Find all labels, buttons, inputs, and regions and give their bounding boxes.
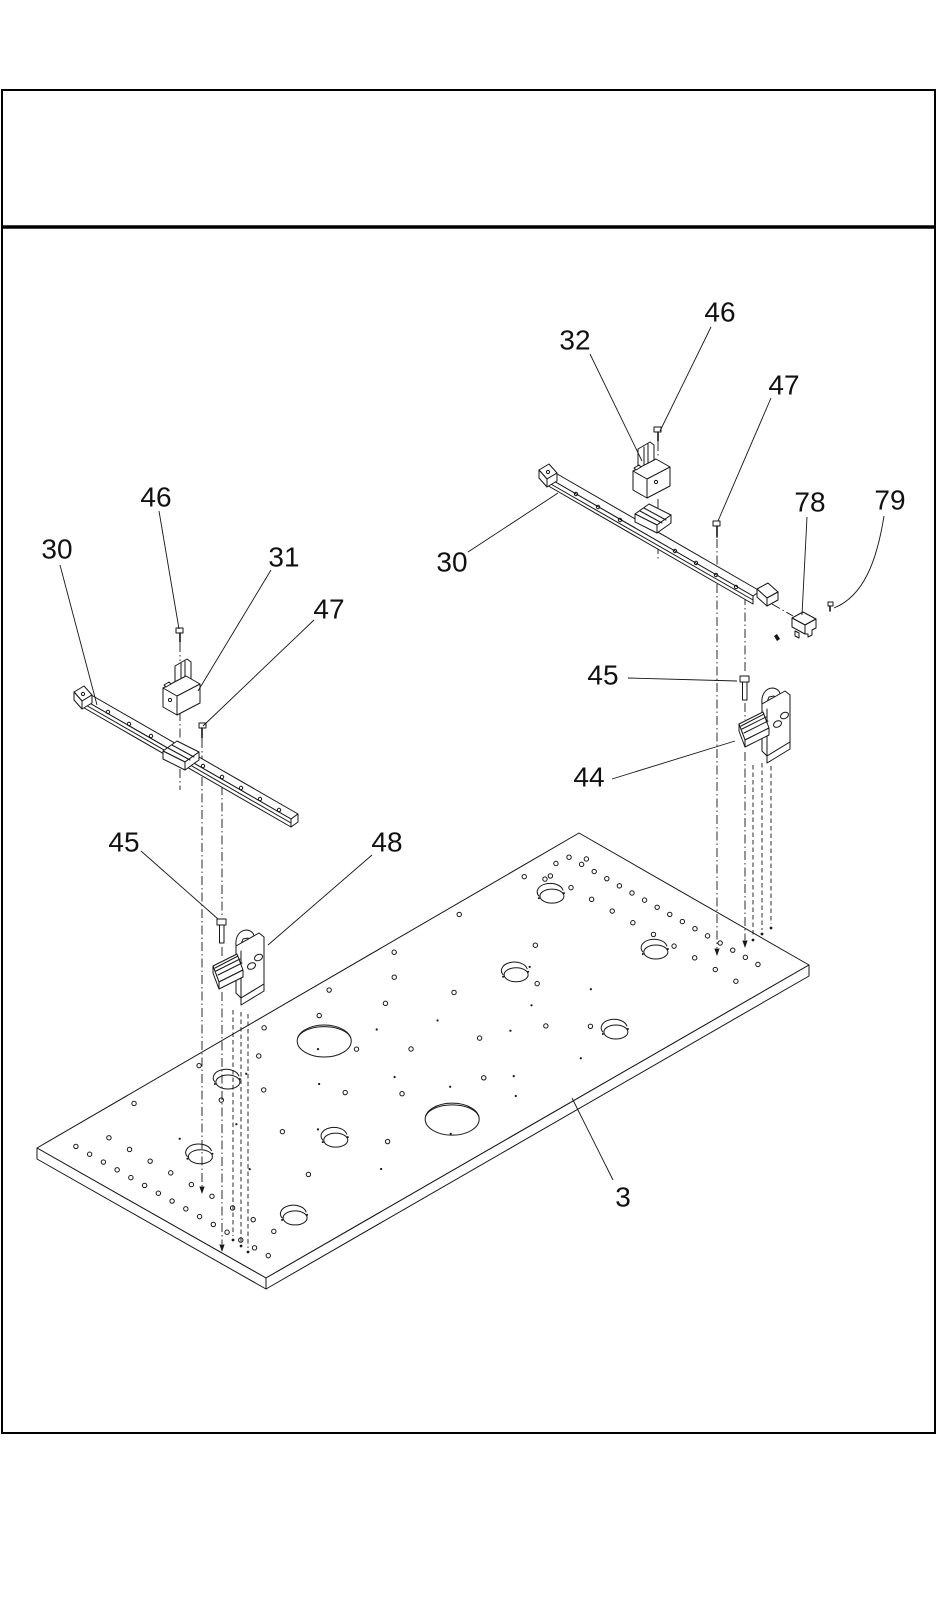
keyhole-dot [667, 948, 669, 950]
plate-dot [317, 1128, 319, 1130]
manual-page: 46324778793046303147454445483 [0, 0, 944, 1607]
plate-dot [590, 988, 592, 990]
pin-45-right [740, 676, 749, 700]
leader-line-46-upper-right [660, 327, 711, 431]
part-label-30-left: 30 [41, 534, 72, 565]
keyhole-dot [527, 971, 529, 973]
plate-dot [380, 1168, 382, 1170]
part-label-79: 79 [874, 485, 905, 516]
part-label-32: 32 [559, 325, 590, 356]
part-label-31: 31 [268, 542, 299, 573]
plate-dot [529, 966, 531, 968]
leader-line-30-right [468, 493, 558, 552]
keyhole-dot [306, 1214, 308, 1216]
plate-dot [509, 1030, 511, 1032]
plate-dot [235, 1123, 237, 1125]
diagram-canvas: 46324778793046303147454445483 [0, 0, 944, 1607]
plate-dot [513, 1075, 515, 1077]
screw-47-right [713, 521, 720, 537]
plate-dot [249, 1168, 251, 1170]
leader-line-79 [834, 516, 884, 608]
leader-line-45-left [141, 851, 218, 919]
keyhole-dot [211, 1153, 213, 1155]
part-label-44: 44 [573, 762, 604, 793]
keyhole-dot [281, 1219, 283, 1221]
keyhole-dot [627, 1028, 629, 1030]
part-label-47-right: 47 [768, 370, 799, 401]
screw-47-left [199, 723, 206, 738]
screw-46-right [654, 427, 661, 441]
part-label-30-right: 30 [436, 547, 467, 578]
block-32 [633, 442, 670, 498]
plate-dot [317, 1048, 319, 1050]
block-31 [163, 659, 200, 715]
keyhole-dot [502, 976, 504, 978]
screw-46-left [176, 628, 183, 642]
plate-dot [393, 1076, 395, 1078]
leader-line-47-left [203, 620, 314, 726]
part-label-45-right: 45 [587, 660, 618, 691]
part-label-78: 78 [794, 487, 825, 518]
plate-dot [436, 1019, 438, 1021]
keyhole-dot [186, 1158, 188, 1160]
keyhole-dot [563, 892, 565, 894]
leader-line-47-right [718, 398, 771, 521]
base-plate-3-top [37, 833, 809, 1278]
centerline-end-dot [761, 933, 764, 936]
pin-78-tip [774, 634, 780, 641]
part-label-3: 3 [615, 1182, 631, 1213]
plate-dot [245, 1073, 247, 1075]
leader-line-32 [590, 354, 642, 461]
part-label-46-upper-left: 46 [140, 482, 171, 513]
content-frame [2, 90, 935, 1433]
leader-line-46-upper-left [159, 511, 179, 629]
plate-dot [580, 1057, 582, 1059]
leader-line-30-left [60, 565, 97, 705]
part-label-48: 48 [371, 827, 402, 858]
keyhole-dot [322, 1141, 324, 1143]
keyhole-dot [538, 897, 540, 899]
leader-line-45-right [628, 678, 737, 681]
keyhole-dot [214, 1083, 216, 1085]
plate-dot [318, 1083, 320, 1085]
leader-line-3 [572, 1098, 613, 1180]
centerline-end-dot [240, 1245, 243, 1248]
leader-line-48 [268, 855, 372, 945]
centerline-diagonal [772, 604, 793, 616]
centerline-end-dot [232, 1239, 235, 1242]
plate-dot [449, 1086, 451, 1088]
plate-dot [376, 1028, 378, 1030]
plate-dot [450, 1133, 452, 1135]
centerline-end-dot [752, 939, 755, 942]
part-label-46-upper-right: 46 [704, 297, 735, 328]
keyhole-dot [347, 1136, 349, 1138]
leader-line-31 [198, 570, 271, 691]
page-frame [2, 90, 935, 1433]
part-label-47-left: 47 [313, 594, 344, 625]
plate-dot [515, 1095, 517, 1097]
part-label-45-left: 45 [108, 827, 139, 858]
plate-dot [179, 1138, 181, 1140]
leader-line-78 [802, 517, 807, 615]
centerline-end-dot [770, 927, 773, 930]
keyhole-dot [642, 953, 644, 955]
centerline-end-dot [247, 1251, 250, 1254]
end-stop-78 [792, 612, 816, 638]
pin-45-left [217, 919, 226, 943]
plate-dot [530, 1004, 532, 1006]
screw-79 [828, 602, 833, 611]
keyhole-dot [602, 1033, 604, 1035]
